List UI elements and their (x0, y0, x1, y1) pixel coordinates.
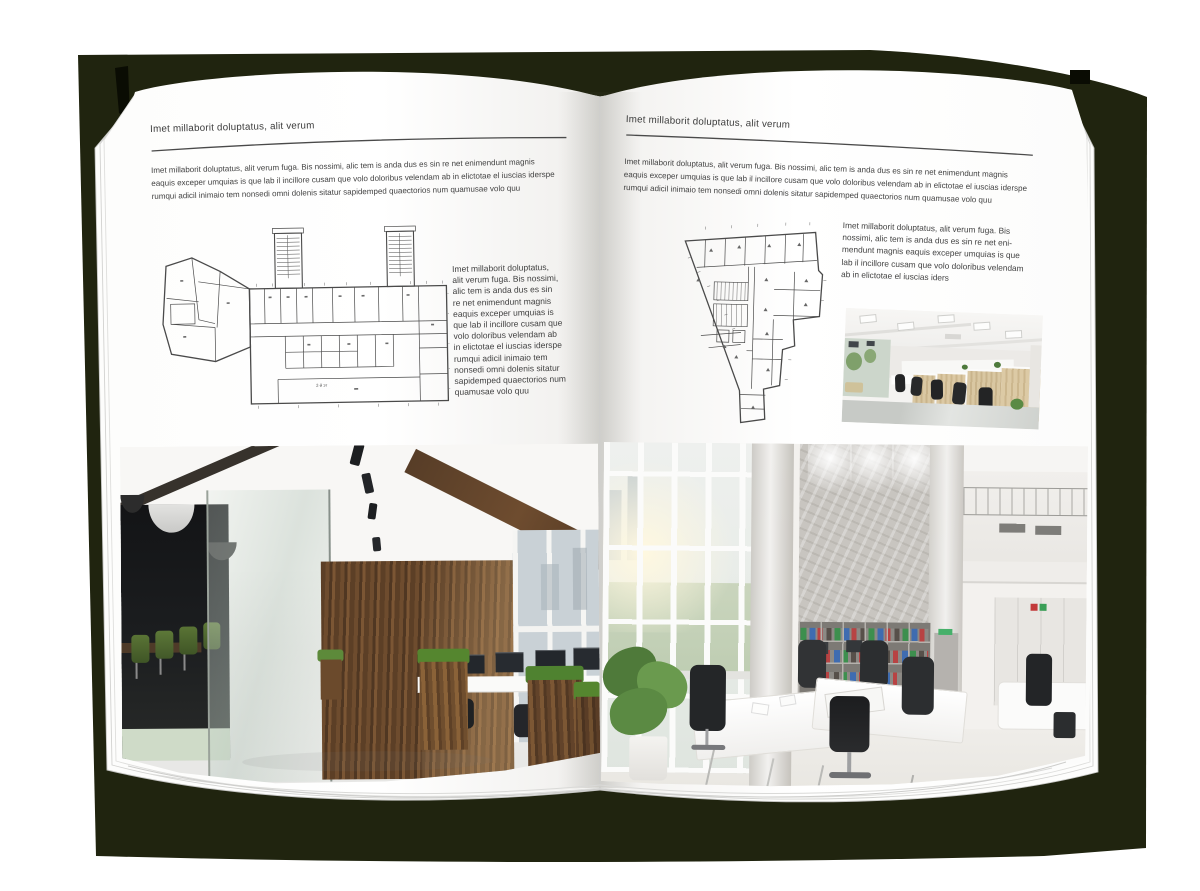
desk-papers (751, 702, 769, 715)
ceiling-light (973, 322, 990, 331)
office-chair (895, 374, 906, 392)
tv-screen (867, 341, 875, 346)
office-chair-foreground (829, 696, 869, 752)
planter-box (420, 662, 469, 750)
vent-grille (999, 523, 1025, 532)
window-transom (513, 626, 599, 633)
safety-sign (1040, 604, 1047, 611)
chair-stem (847, 752, 851, 774)
tv-screen (848, 341, 858, 347)
cover-fold-right (1070, 70, 1090, 84)
downlight-glow (807, 444, 852, 504)
sofa (845, 382, 863, 393)
chair-base (691, 745, 725, 750)
office-chair (689, 665, 726, 731)
safety-sign (1031, 604, 1038, 611)
office-chair (952, 382, 967, 405)
downlight-glow (849, 444, 894, 504)
vent-grille (1035, 526, 1061, 535)
desk-plant (962, 364, 968, 369)
left-office-photo-canvas (120, 444, 600, 785)
left-office-photo (120, 444, 600, 785)
ceiling-vent (945, 334, 961, 340)
office-chair (910, 376, 923, 396)
green-chair (131, 635, 149, 663)
green-chair (155, 631, 173, 659)
right-side-text: Imet millaborit doluptatus, alit verum f… (841, 219, 1048, 287)
office-chair (1026, 654, 1052, 706)
glass-partition (206, 490, 332, 783)
city-silhouette (541, 564, 559, 610)
ceiling-light (897, 321, 915, 331)
track-spotlight (372, 537, 381, 552)
left-page-head-block: Imet millaborit doluptatus, alit verum I… (150, 114, 584, 203)
exit-sign (938, 629, 952, 635)
left-side-text: Imet millaborit doluptatus, alit verum f… (452, 261, 585, 398)
city-silhouette (573, 548, 587, 610)
right-floorplan (641, 216, 834, 429)
ceiling-light (859, 314, 877, 324)
magazine-mockup: Imet millaborit doluptatus, alit verum I… (0, 0, 1200, 891)
right-small-photo (842, 308, 1043, 429)
ceiling-light (1005, 330, 1022, 339)
right-page-head-block: Imet millaborit doluptatus, alit verum I… (623, 114, 1060, 210)
left-floorplan: 2-й эт (155, 223, 450, 420)
waste-bin (1053, 712, 1075, 738)
chair-base (136, 663, 138, 679)
planter-box (576, 697, 601, 782)
right-office-photo (601, 442, 1088, 790)
monitor (495, 652, 523, 672)
right-office-photo-canvas (601, 442, 1088, 790)
right-small-photo-canvas (842, 308, 1043, 429)
chair-base (829, 772, 871, 778)
office-chair (902, 657, 935, 715)
office-chair (931, 379, 943, 399)
left-header-rule (150, 132, 568, 153)
ceiling-light (937, 314, 954, 323)
small-planter (320, 659, 341, 699)
left-floorplan-caption: 2-й эт (316, 383, 327, 388)
green-chair (179, 626, 197, 654)
plant-pot (629, 736, 667, 780)
